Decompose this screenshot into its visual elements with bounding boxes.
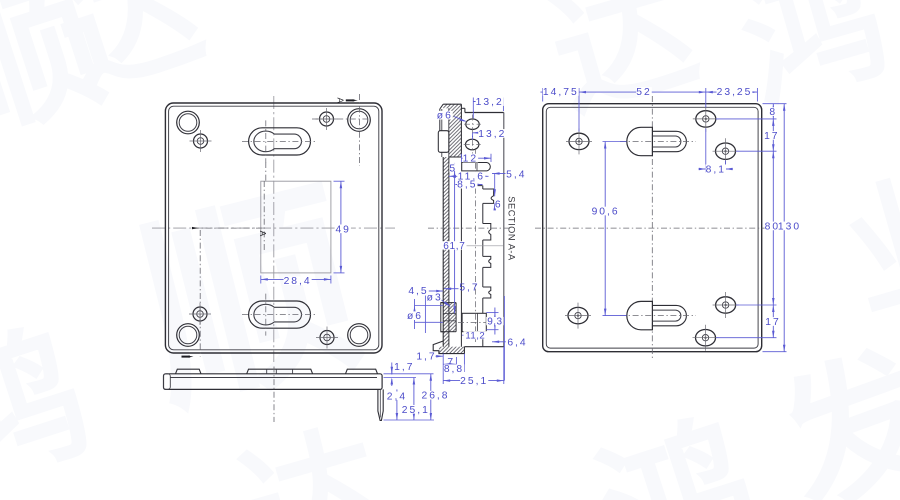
svg-text:23,25: 23,25 — [717, 87, 753, 98]
svg-text:8,5: 8,5 — [457, 180, 477, 191]
svg-text:8,8: 8,8 — [444, 364, 464, 375]
svg-text:8: 8 — [769, 107, 777, 118]
svg-text:11,2: 11,2 — [465, 330, 485, 341]
svg-text:130: 130 — [778, 221, 801, 232]
svg-text:17: 17 — [764, 131, 779, 142]
svg-text:1,7: 1,7 — [416, 352, 436, 363]
svg-text:49: 49 — [335, 224, 350, 235]
svg-text:17: 17 — [765, 317, 780, 328]
svg-text:13,2: 13,2 — [476, 97, 504, 108]
svg-text:6: 6 — [495, 200, 503, 211]
svg-text:26,8: 26,8 — [421, 391, 449, 402]
svg-text:9,3: 9,3 — [487, 317, 502, 328]
svg-text:90,6: 90,6 — [592, 207, 620, 218]
svg-text:A: A — [335, 97, 345, 103]
svg-text:2,4: 2,4 — [387, 391, 407, 402]
svg-text:61,7: 61,7 — [443, 241, 465, 252]
svg-text:ø6: ø6 — [437, 111, 453, 122]
svg-text:52: 52 — [636, 87, 651, 98]
svg-text:1,7: 1,7 — [394, 362, 414, 373]
svg-text:ø3: ø3 — [427, 293, 443, 304]
svg-text:14,75: 14,75 — [543, 87, 579, 98]
svg-text:A: A — [258, 231, 268, 237]
svg-text:5: 5 — [449, 163, 457, 174]
svg-text:6,4: 6,4 — [507, 337, 527, 348]
svg-text:13,2: 13,2 — [478, 129, 506, 140]
svg-text:5,4: 5,4 — [506, 170, 526, 181]
svg-text:28,4: 28,4 — [284, 276, 312, 287]
svg-text:8,1: 8,1 — [706, 164, 726, 175]
svg-text:25,1: 25,1 — [460, 376, 488, 387]
svg-text:5,7: 5,7 — [459, 282, 479, 293]
svg-text:ø6: ø6 — [407, 311, 423, 322]
svg-text:25,1: 25,1 — [402, 405, 430, 416]
svg-text:SECTION A-A: SECTION A-A — [506, 196, 516, 261]
svg-text:12: 12 — [463, 154, 478, 165]
